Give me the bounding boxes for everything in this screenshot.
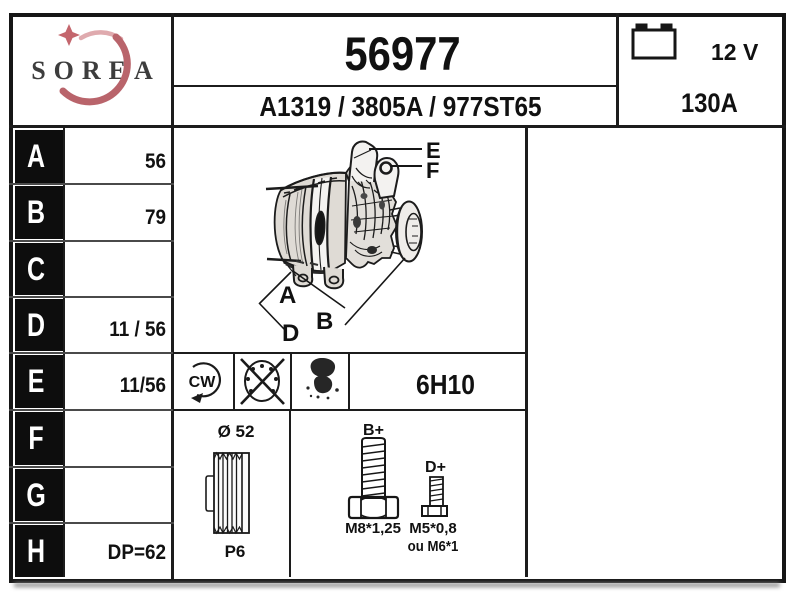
svg-text:A: A	[279, 282, 296, 309]
svg-text:F: F	[426, 158, 439, 183]
svg-text:D: D	[282, 320, 299, 347]
svg-text:CW: CW	[189, 374, 217, 391]
svg-text:B: B	[316, 308, 333, 335]
